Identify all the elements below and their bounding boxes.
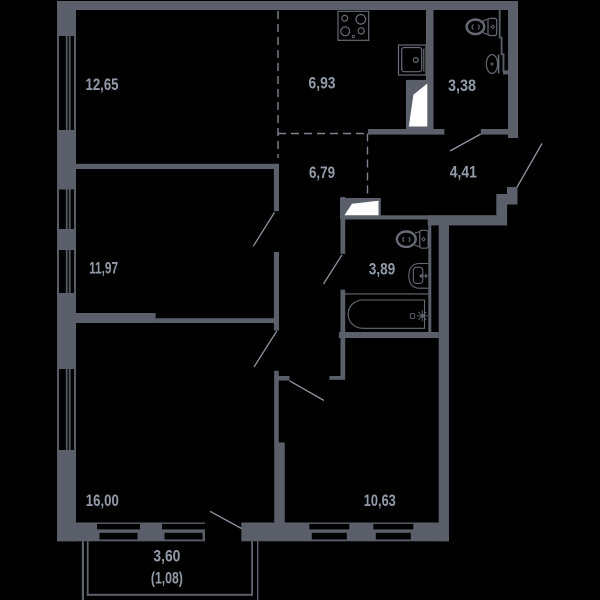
svg-text:3,38: 3,38	[448, 77, 476, 95]
svg-text:11,97: 11,97	[89, 260, 118, 278]
svg-text:10,63: 10,63	[364, 492, 396, 510]
svg-text:4,41: 4,41	[450, 163, 477, 181]
svg-text:(1,08): (1,08)	[151, 569, 183, 587]
svg-text:3,89: 3,89	[369, 260, 396, 278]
svg-text:3,60: 3,60	[153, 548, 180, 566]
svg-text:6,79: 6,79	[309, 164, 335, 182]
svg-text:12,65: 12,65	[86, 76, 119, 94]
svg-text:16,00: 16,00	[86, 492, 119, 510]
svg-text:6,93: 6,93	[309, 74, 336, 92]
